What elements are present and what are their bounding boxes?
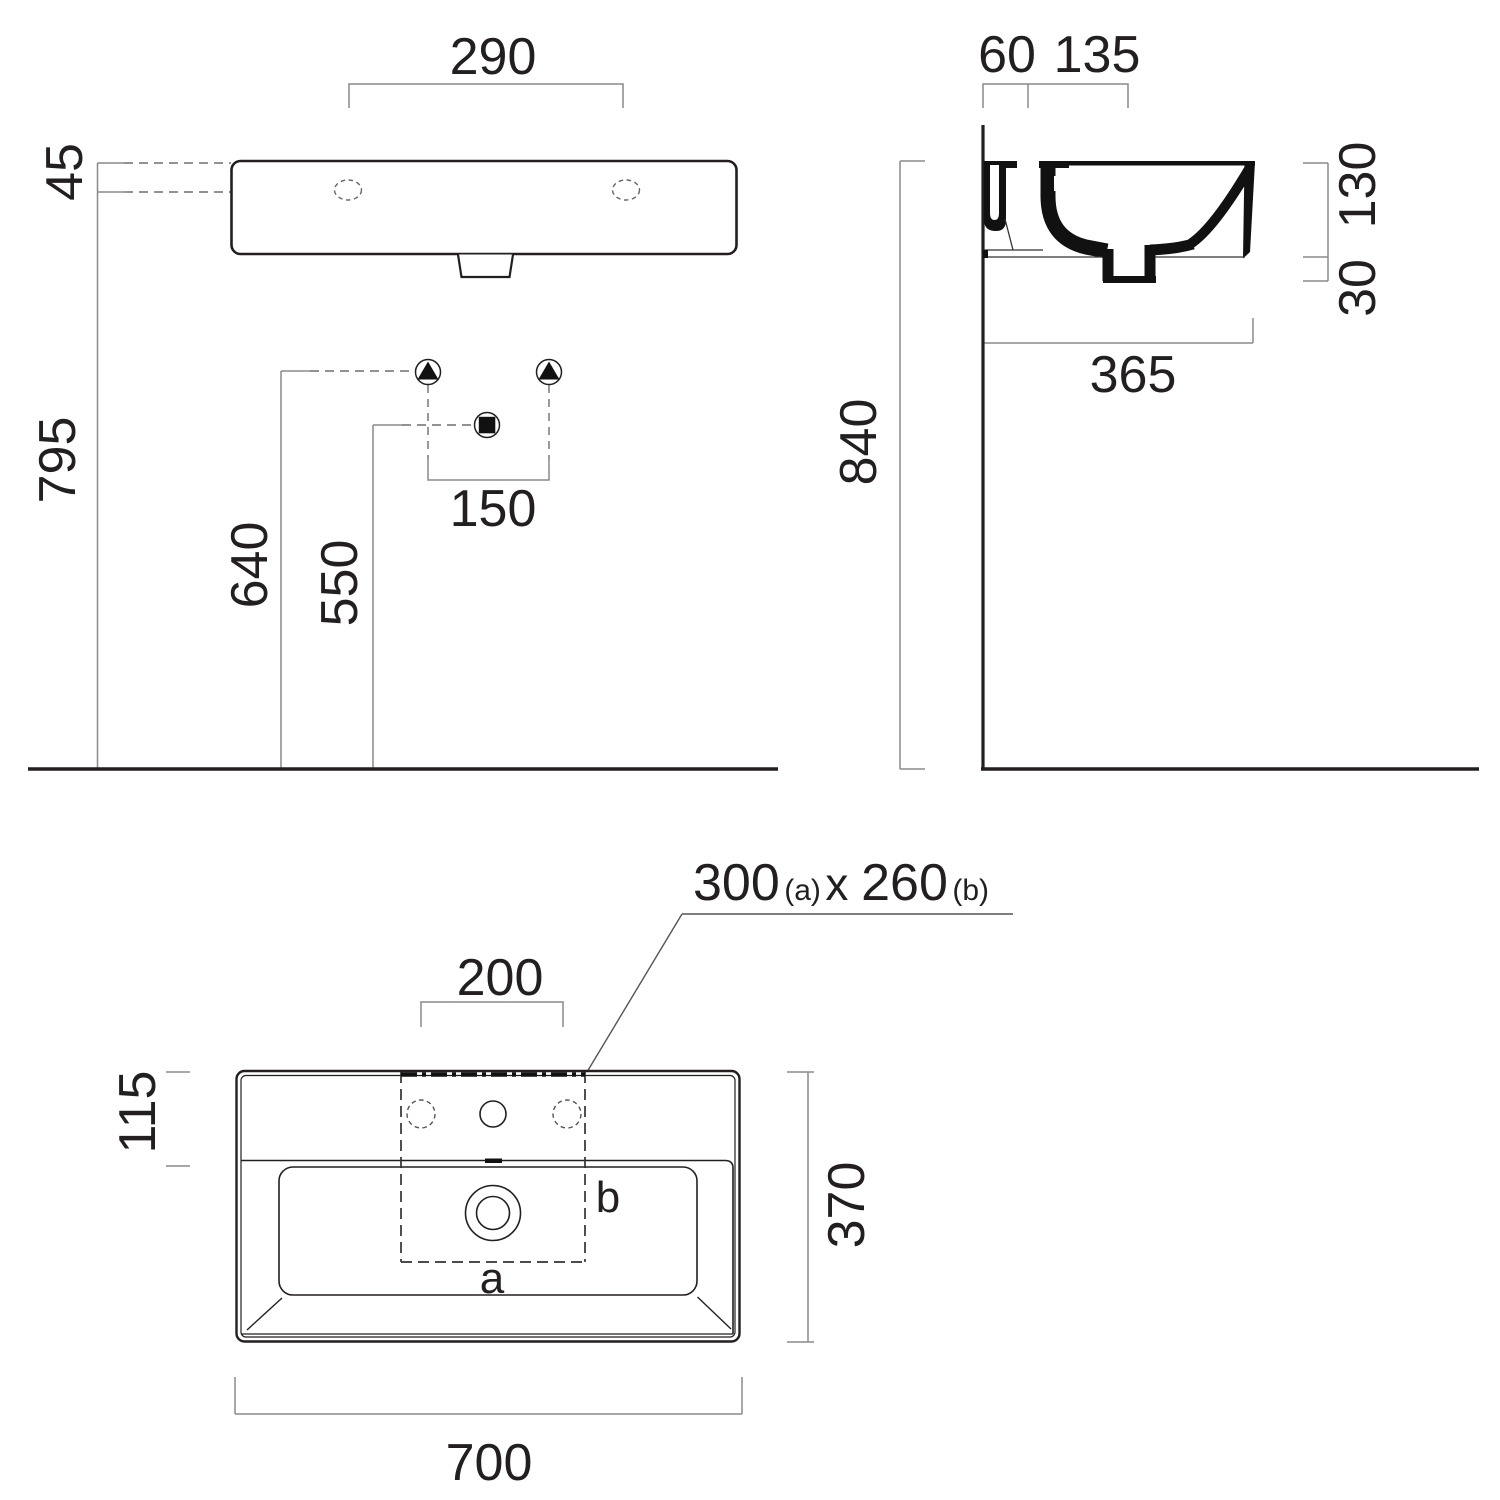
cutout-w-value: 300 — [693, 854, 780, 912]
dim-700-label: 700 — [446, 1434, 533, 1492]
support-strut — [1191, 169, 1249, 244]
cutout-w-sub: (a) — [784, 874, 821, 907]
front-edge-bar — [1243, 162, 1255, 259]
cutout-a-label: a — [480, 1254, 505, 1303]
dim-135-label: 135 — [1054, 26, 1141, 84]
waste-outlet-symbol — [475, 413, 500, 438]
dim-bracket-290 — [349, 84, 623, 108]
dim-550-label: 550 — [311, 540, 369, 627]
dim-130-label: 130 — [1329, 142, 1387, 229]
dim-840-label: 840 — [830, 399, 888, 486]
dim-365-label: 365 — [1090, 346, 1177, 404]
dim-200-label: 200 — [457, 949, 544, 1007]
dim-60-label: 60 — [978, 26, 1036, 84]
void-bottom-diagonal — [1005, 219, 1013, 250]
dim-115-label: 115 — [109, 1071, 167, 1154]
wall-foot-notch — [983, 250, 988, 258]
overflow-slot-mark — [485, 1159, 502, 1164]
dim-bracket-150 — [428, 459, 549, 480]
front-view: 290 45 795 640 550 150 — [28, 28, 778, 769]
dim-150-label: 150 — [450, 480, 537, 538]
dim-290-label: 290 — [450, 28, 537, 86]
dim-30-label: 30 — [1329, 259, 1387, 317]
basin-floor-slope — [1150, 244, 1193, 250]
drain-stub-front — [458, 255, 513, 278]
dim-370-label: 370 — [818, 1162, 876, 1249]
cutout-size-label: 300 (a) x 260 (b) — [693, 854, 989, 912]
waste-square-icon — [479, 417, 496, 434]
technical-drawing-canvas: 290 45 795 640 550 150 — [0, 0, 1500, 1500]
water-supply-symbol-right — [537, 360, 562, 385]
water-supply-symbol-left — [416, 360, 441, 385]
cutout-b-label: b — [596, 1173, 620, 1222]
dim-bracket-60-135 — [983, 84, 1128, 108]
dim-795-label: 795 — [29, 417, 87, 504]
dim-45-label: 45 — [36, 143, 94, 201]
cutout-leader-diagonal — [587, 914, 682, 1072]
cutout-h-value: 260 — [861, 854, 948, 912]
cutout-h-sub: (b) — [952, 874, 989, 907]
overflow-outlet-notch — [1054, 176, 1064, 191]
basin-front-outline — [232, 161, 737, 254]
basin-section-silhouette — [983, 161, 1255, 281]
side-view: 60 135 840 130 30 365 — [830, 26, 1479, 770]
overflow-channel-slot — [990, 165, 999, 220]
rim-top — [1068, 161, 1255, 166]
plan-view: 300 (a) x 260 (b) 200 115 370 700 a b — [109, 854, 1013, 1492]
cutout-sep: x — [825, 858, 861, 910]
dim-640-label: 640 — [221, 522, 279, 609]
drawing-page: 290 45 795 640 550 150 — [0, 0, 1500, 1500]
